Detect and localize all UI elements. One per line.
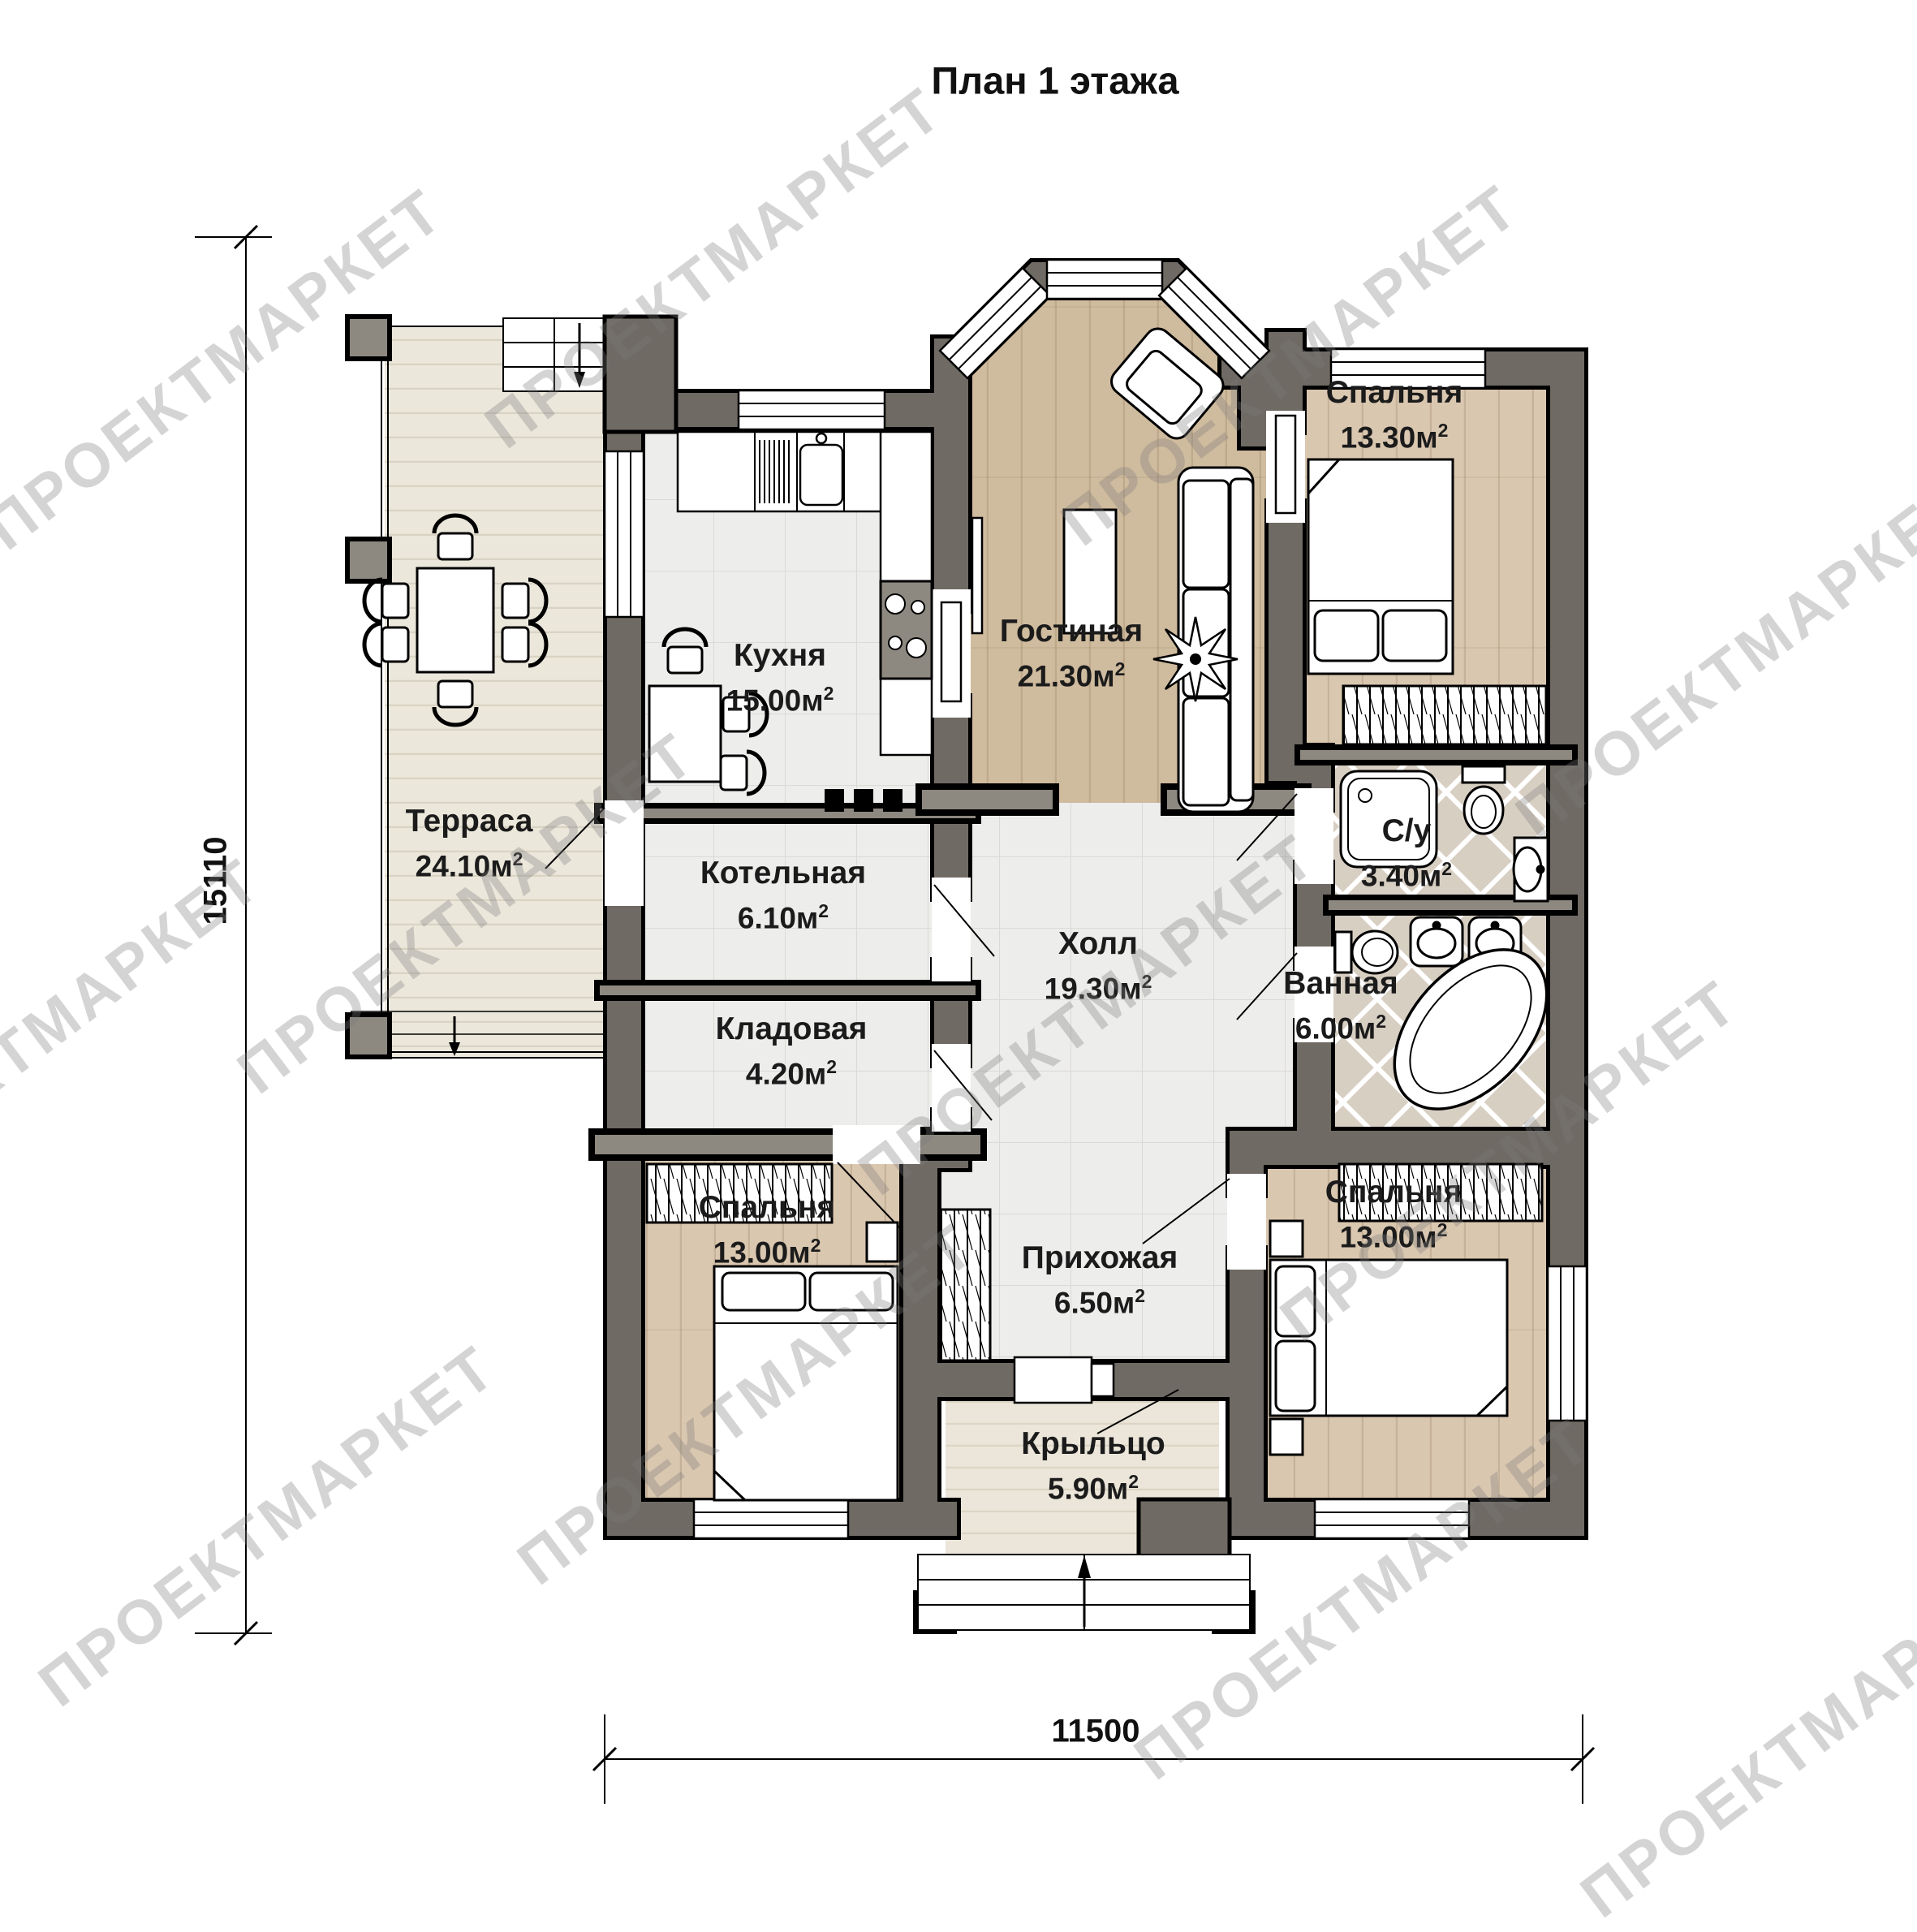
page-title: План 1 этажа bbox=[932, 58, 1179, 103]
bed-top-right bbox=[1308, 459, 1453, 674]
room-label-bedroom-right: Спальня 13.00м2 bbox=[1325, 1173, 1462, 1255]
room-label-porch: Крыльцо 5.90м2 bbox=[1021, 1425, 1165, 1507]
toilet-wc bbox=[1463, 766, 1505, 834]
room-label-entry: Прихожая 6.50м2 bbox=[1022, 1239, 1178, 1321]
washbasin-wc bbox=[1514, 838, 1548, 901]
dimension-label-bottom: 11500 bbox=[1051, 1714, 1139, 1750]
dimension-label-left: 15110 bbox=[198, 836, 235, 925]
stove bbox=[881, 581, 932, 679]
wardrobe-top-right bbox=[1343, 686, 1546, 744]
room-label-hall: Холл 19.30м2 bbox=[1045, 925, 1152, 1007]
room-label-bathroom: Ванная 6.00м2 bbox=[1283, 964, 1398, 1046]
boiler-equipment bbox=[825, 789, 902, 812]
terrace-posts bbox=[347, 317, 390, 1057]
room-label-bedroom-left: Спальня 13.00м2 bbox=[699, 1188, 835, 1270]
room-label-living: Гостиная 21.30м2 bbox=[1000, 612, 1143, 694]
room-label-boiler: Котельная 6.10м2 bbox=[700, 854, 866, 936]
floor-plan-drawing bbox=[0, 0, 1917, 1917]
kitchen-vent-grille bbox=[760, 440, 789, 503]
room-label-bedroom-top: Спальня 13.30м2 bbox=[1326, 373, 1463, 455]
plant bbox=[1153, 617, 1238, 701]
tv-unit bbox=[972, 518, 982, 633]
terrace-stairs bbox=[503, 318, 605, 391]
dimension-line-left bbox=[195, 226, 272, 1645]
room-label-wc: С/у 3.40м2 bbox=[1361, 812, 1452, 894]
wardrobe-entry bbox=[940, 1210, 990, 1361]
room-label-storage: Кладовая 4.20м2 bbox=[716, 1010, 868, 1092]
room-label-terrace: Терраса 24.10м2 bbox=[406, 802, 533, 884]
room-label-kitchen: Кухня 15.00м2 bbox=[726, 636, 834, 718]
kitchen-sink bbox=[800, 433, 842, 505]
